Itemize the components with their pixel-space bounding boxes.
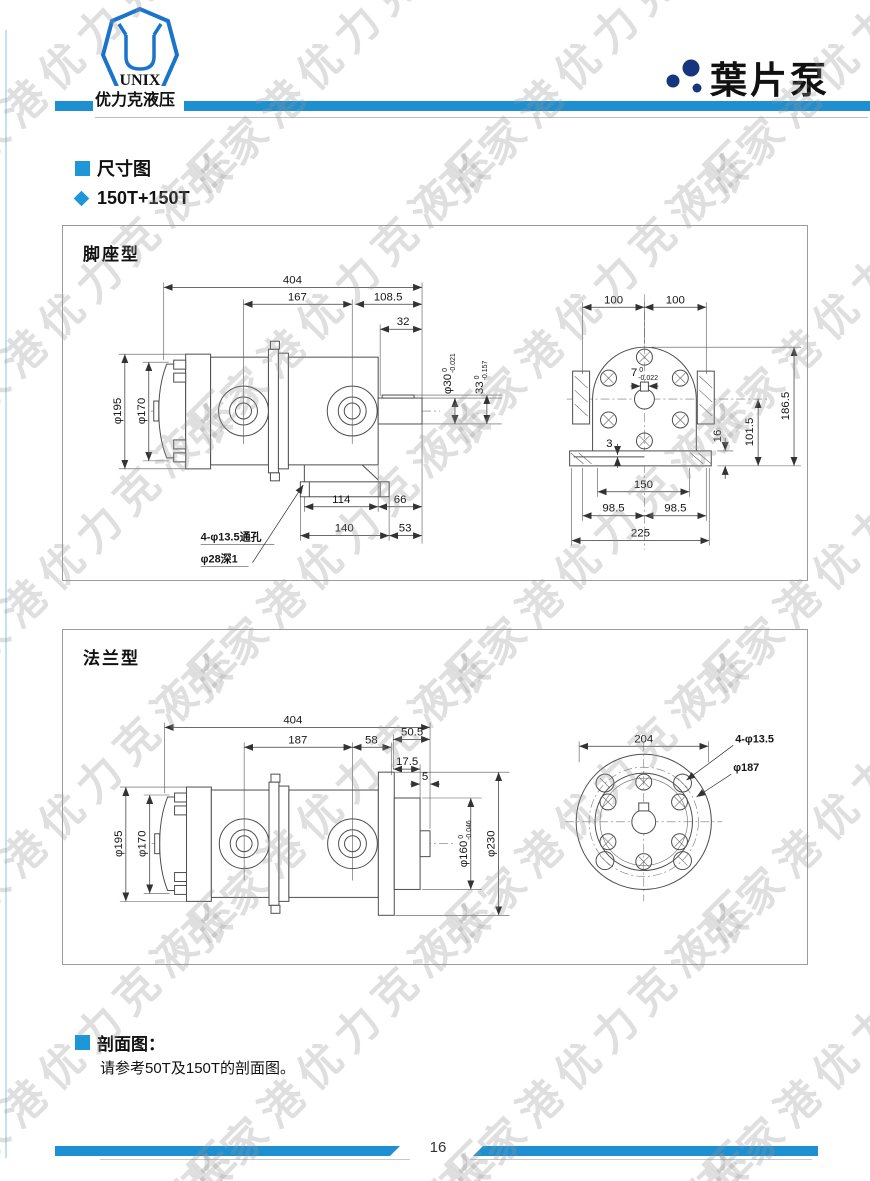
- left-accent-line: [5, 30, 7, 1158]
- dim-32: 32: [397, 316, 410, 328]
- dim-66: 66: [394, 494, 407, 506]
- foot-rear-view: [570, 347, 715, 466]
- dim-100-left: 100: [604, 294, 623, 306]
- section-crosssection-note: 请参考50T及150T的剖面图。: [100, 1057, 295, 1078]
- dim-5: 5: [422, 771, 428, 783]
- dim-dia195: φ195: [113, 830, 125, 856]
- dim-16: 16: [712, 430, 724, 443]
- dim-98-5-right: 98.5: [664, 503, 686, 515]
- dim-shaft-dia: φ300-0.021: [442, 353, 457, 394]
- dim-53: 53: [399, 523, 412, 535]
- dim-17-5: 17.5: [396, 756, 418, 768]
- unix-logo: UNIX: [92, 5, 188, 95]
- dim-100-right: 100: [666, 294, 685, 306]
- section-crosssection-heading: 剖面图：: [75, 1030, 165, 1055]
- dim-186-5: 186.5: [780, 392, 792, 421]
- dim-101-5: 101.5: [744, 418, 756, 447]
- brand-name: 优力克液压: [93, 86, 184, 112]
- dim-187: 187: [288, 734, 307, 746]
- note-bolt-circle: φ187: [733, 762, 759, 774]
- section-dims-heading: 尺寸图: [75, 155, 151, 181]
- dim-dia195: φ195: [112, 398, 124, 425]
- flange-side-view: [155, 772, 430, 915]
- section-dims-label: 尺寸图: [97, 155, 151, 181]
- dim-key-height: 330-0.157: [474, 361, 489, 395]
- dim-167: 167: [288, 291, 307, 303]
- footer-bar-right: [473, 1146, 818, 1156]
- dim-108-5: 108.5: [374, 291, 403, 303]
- note-through-holes: 4-φ13.5通孔: [201, 531, 262, 544]
- flange-drawing: 404 187 58 50.5 17.5 5 φ195 φ170 φ1600-0…: [63, 630, 807, 964]
- model-label: 150T+150T: [97, 188, 190, 209]
- note-spotface: φ28深1: [201, 552, 238, 566]
- foot-mount-drawing: 404 167 108.5 32 φ300-0.021 330-0.157 φ1…: [63, 254, 807, 580]
- foot-side-view: [154, 341, 422, 497]
- page-number: 16: [418, 1139, 458, 1156]
- section-crosssection-label: 剖面图：: [97, 1030, 165, 1055]
- dim-58: 58: [365, 734, 378, 746]
- dim-dia230: φ230: [486, 830, 498, 856]
- dim-404: 404: [283, 274, 303, 286]
- note-bolt-holes: 4-φ13.5: [735, 733, 774, 745]
- dim-dia170: φ170: [137, 830, 149, 856]
- model-heading: 150T+150T: [76, 188, 190, 209]
- dim-3: 3: [606, 438, 612, 450]
- footer-underline-left: [100, 1159, 410, 1160]
- dim-98-5-left: 98.5: [602, 503, 624, 515]
- dim-204: 204: [634, 733, 654, 745]
- footer-bar-left: [55, 1146, 400, 1156]
- dim-dia170: φ170: [136, 398, 148, 425]
- dim-150: 150: [634, 479, 653, 491]
- dim-225: 225: [631, 528, 650, 540]
- foot-mount-box: 脚座型: [62, 225, 808, 581]
- square-bullet-icon: [75, 1035, 90, 1050]
- dim-140: 140: [335, 523, 354, 535]
- page-title: 葉片泵: [710, 50, 830, 104]
- dim-114: 114: [332, 494, 351, 506]
- dim-404: 404: [283, 714, 303, 726]
- flange-box: 法兰型: [62, 629, 808, 965]
- title-dots-icon: [663, 50, 709, 98]
- diamond-bullet-icon: [74, 191, 90, 207]
- dim-50-5: 50.5: [401, 726, 423, 738]
- square-bullet-icon: [75, 161, 90, 176]
- header-gray-line: [95, 117, 868, 118]
- footer-underline-right: [470, 1159, 812, 1160]
